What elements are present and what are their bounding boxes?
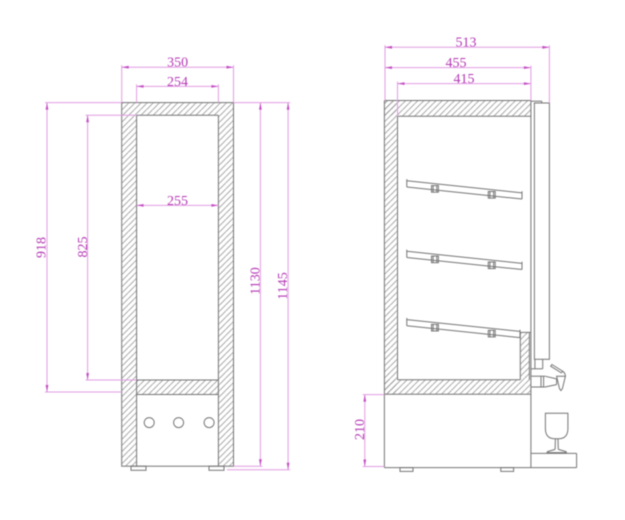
svg-text:415: 415 [454, 72, 475, 87]
svg-text:1130: 1130 [249, 267, 264, 294]
svg-text:1145: 1145 [276, 272, 291, 299]
svg-text:255: 255 [167, 194, 188, 209]
svg-text:455: 455 [446, 56, 467, 71]
svg-text:210: 210 [353, 419, 368, 440]
svg-text:350: 350 [167, 56, 188, 71]
svg-text:513: 513 [456, 36, 477, 51]
svg-text:254: 254 [167, 75, 188, 90]
svg-text:825: 825 [76, 237, 91, 258]
svg-text:918: 918 [34, 237, 49, 258]
